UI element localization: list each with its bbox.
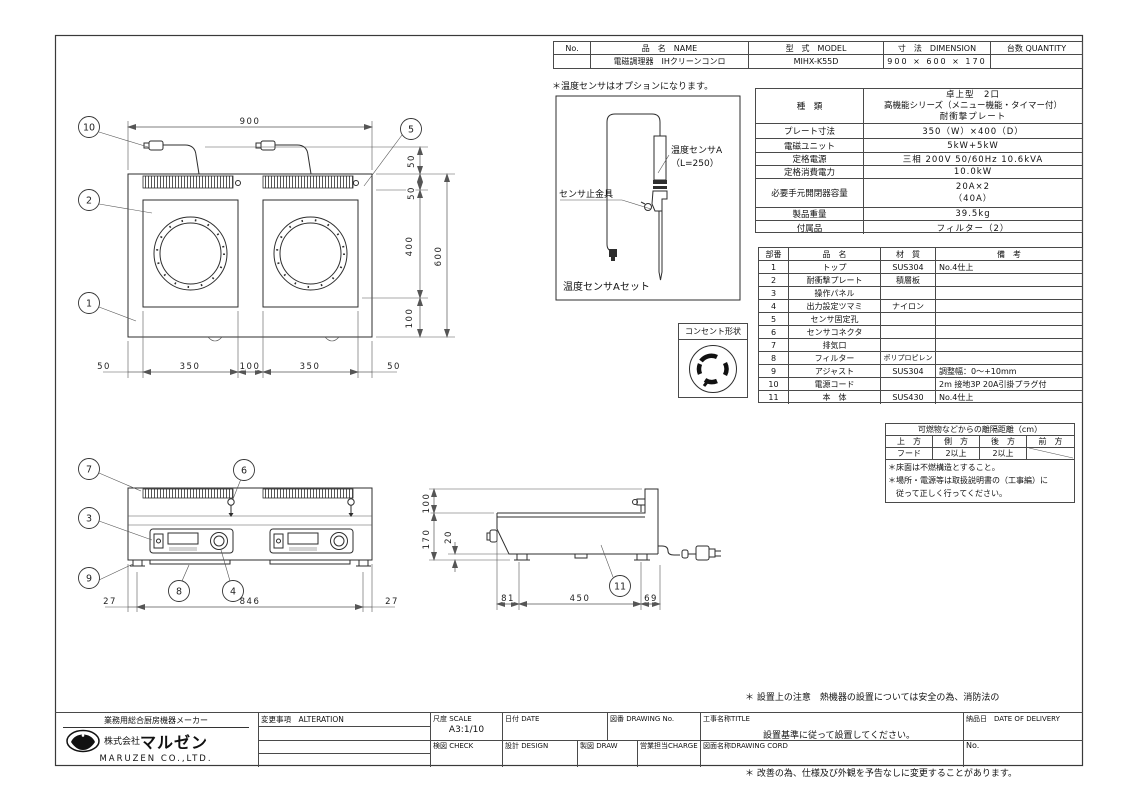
parts-table-head: 部番 品 名 材 質 備 考 — [759, 248, 1082, 261]
part-no: 9 — [759, 365, 789, 377]
balloon-1-label: 1 — [86, 299, 92, 310]
table-row: 3 操作パネル — [759, 287, 1082, 300]
col-dimension: 寸 法 DIMENSION — [884, 42, 991, 54]
spec-value: 5kW+5kW — [864, 139, 1082, 152]
sensor-detail: 温度センサA （L=250） センサ止金具 温度センサAセット — [556, 96, 740, 300]
part-note: No.4仕上 — [936, 261, 1082, 273]
burner-left-inner — [160, 223, 221, 284]
charge-cell: 営業担当CHARGE — [637, 740, 700, 767]
part-name: センサコネクタ — [789, 326, 881, 338]
plate-left — [143, 200, 238, 307]
dim-50-vent: 50 — [407, 186, 417, 200]
part-note: No.4仕上 — [936, 391, 1082, 404]
dim-600: 600 — [434, 246, 444, 267]
table-row: 製品重量 39.5kg — [756, 208, 1082, 221]
dim-27r: 27 — [385, 597, 399, 607]
table-row: 電磁ユニット 5kW+5kW — [756, 139, 1082, 153]
note-line3: ＊ 改善の為、仕様及び外観を予告なしに変更することがあります。 — [745, 768, 1017, 781]
spec-label: 種 類 — [756, 89, 864, 123]
delivery-cell: 納品日 DATE OF DELIVERY — [963, 713, 1083, 740]
spec-label: 製品重量 — [756, 208, 864, 220]
part-name: センサ固定孔 — [789, 313, 881, 325]
plan-body — [128, 174, 372, 337]
part-note — [936, 339, 1082, 351]
col-quantity: 台数 QUANTITY — [991, 42, 1082, 54]
dim-27l: 27 — [103, 597, 117, 607]
charge-label: 営業担当CHARGE — [638, 740, 700, 752]
parts-table: 部番 品 名 材 質 備 考 1 トップ SUS304 No.4仕上 2 耐衝撃… — [758, 247, 1083, 403]
plan-extension-lines — [103, 121, 455, 378]
part-material: ポリプロピレン — [881, 352, 936, 364]
date-cell: 日付 DATE — [502, 713, 607, 740]
col-note: 備 考 — [936, 248, 1082, 260]
control-panel-right — [270, 529, 353, 553]
company-cell: 業務用総合厨房機器メーカー 株式会社 マルゼン MARUZEN CO.,LTD. — [55, 713, 258, 767]
burner-right-ticks — [277, 220, 344, 287]
part-note — [936, 313, 1082, 325]
sensor-connector-right — [348, 499, 354, 517]
part-name: フィルター — [789, 352, 881, 364]
clearance-title-row: 可燃物などからの離隔距離（cm） — [886, 424, 1074, 436]
cell-name: 電磁調理器 IHクリーンコンロ — [591, 55, 749, 68]
cell-dimension: 900 × 600 × 170 — [884, 55, 991, 68]
dim-b50l: 50 — [97, 362, 111, 372]
part-material: SUS430 — [881, 391, 936, 404]
side-foot-front — [514, 554, 530, 560]
balloon-11-label: 11 — [614, 582, 626, 593]
side-foot-back — [634, 554, 650, 560]
scale-cell: 尺度 SCALE A3:1/10 — [430, 713, 502, 740]
part-no: 10 — [759, 378, 789, 390]
sensor-hole-left — [236, 181, 241, 186]
col-model: 型 式 MODEL — [749, 42, 884, 54]
spec-value: 350（W）×400（D） — [864, 124, 1082, 138]
sensor-length-label: （L=250） — [671, 158, 719, 169]
dim-81: 81 — [501, 594, 515, 604]
part-name: 操作パネル — [789, 287, 881, 299]
clearance-notes: ＊床面は不燃構造とすること。 ＊場所・電源等は取扱説明書の（工事編）に 従って正… — [886, 460, 1074, 502]
delivery-label: 納品日 DATE OF DELIVERY — [964, 713, 1083, 725]
col-name: 品 名 NAME — [591, 42, 749, 54]
clearance-note3: 従って正しく行ってください。 — [888, 487, 1072, 500]
dim-sv20: 20 — [444, 530, 454, 544]
header-table-head: No. 品 名 NAME 型 式 MODEL 寸 法 DIMENSION 台数 … — [554, 42, 1082, 55]
spec-value: 三相 200V 50/60Hz 10.6kVA — [864, 153, 1082, 165]
dim-b350r: 350 — [300, 362, 321, 372]
dim-400: 400 — [405, 236, 415, 257]
dim-450: 450 — [570, 594, 591, 604]
vent-grille-right — [263, 176, 353, 188]
sensor-band2 — [653, 186, 667, 189]
cell-model: MIHX-K55D — [749, 55, 884, 68]
company-tagline: 業務用総合厨房機器メーカー — [63, 715, 249, 728]
part-material: 積層板 — [881, 274, 936, 286]
part-name: 耐衝撃プレート — [789, 274, 881, 286]
col-part-no: 部番 — [759, 248, 789, 260]
col-material: 材 質 — [881, 248, 936, 260]
part-no: 2 — [759, 274, 789, 286]
part-no: 4 — [759, 300, 789, 312]
dim-100: 100 — [405, 308, 415, 329]
part-name: トップ — [789, 261, 881, 273]
part-no: 11 — [759, 391, 789, 404]
table-row: プレート寸法 350（W）×400（D） — [756, 124, 1082, 139]
part-no: 8 — [759, 352, 789, 364]
spec-label: 定格消費電力 — [756, 166, 864, 178]
dim-sv170: 170 — [422, 529, 432, 550]
spec-label: 定格電源 — [756, 153, 864, 165]
sensor-clamp — [652, 191, 667, 211]
dim-b50r: 50 — [387, 362, 401, 372]
balloon-2-label: 2 — [86, 196, 92, 207]
company-name: マルゼン — [140, 729, 208, 753]
drawing-no-label: 図番 DRAWING No. — [608, 713, 700, 725]
dim-sv100: 100 — [422, 493, 432, 514]
drawing-sheet: 900 50 50 400 100 600 50 350 100 350 50 … — [0, 0, 1135, 802]
balloon-9-label: 9 — [86, 574, 92, 585]
draw-label: 製図 DRAW — [578, 740, 637, 752]
part-name: 本 体 — [789, 391, 881, 404]
spec-label: 付属品 — [756, 221, 864, 234]
alteration-label: 変更事項 ALTERATION — [259, 713, 430, 726]
part-name: 出力設定ツマミ — [789, 300, 881, 312]
output-knob-left — [211, 533, 228, 550]
clearance-h-back: 後 方 — [980, 436, 1027, 447]
burner-right-outer — [274, 217, 347, 290]
table-row: 種 類 卓上型 2口 高機能シリーズ（メニュー機能・タイマー付） 耐衝撃プレート — [756, 89, 1082, 124]
part-name: 排気口 — [789, 339, 881, 351]
header-table-row: 電磁調理器 IHクリーンコンロ MIHX-K55D 900 × 600 × 17… — [554, 55, 1082, 68]
part-note: 調整幅：0～+10mm — [936, 365, 1082, 377]
front-vent-left — [143, 489, 233, 498]
table-row: 7 排気口 — [759, 339, 1082, 352]
clearance-v-front — [1027, 448, 1074, 459]
balloon-7-label: 7 — [86, 465, 92, 476]
delivery-no-cell: No. — [963, 740, 1083, 767]
part-material — [881, 287, 936, 299]
cell-quantity — [991, 55, 1082, 68]
side-profile — [497, 489, 658, 554]
part-no: 7 — [759, 339, 789, 351]
part-material — [881, 378, 936, 390]
alteration-line1 — [258, 726, 430, 727]
balloon-6-label: 6 — [241, 466, 247, 477]
table-row: 付属品 フィルター（2） — [756, 221, 1082, 234]
design-label: 設計 DESIGN — [503, 740, 577, 752]
spec-label: 必要手元開閉器容量 — [756, 179, 864, 207]
plan-feet — [208, 337, 339, 341]
outlet-shape-box — [678, 339, 748, 398]
clearance-h-side: 側 方 — [933, 436, 980, 447]
table-row: 4 出力設定ツマミ ナイロン — [759, 300, 1082, 313]
side-view: 100 170 20 81 450 69 11 — [422, 489, 721, 610]
sensor-option-note: ＊温度センサはオプションになります。 — [552, 79, 752, 92]
maruzen-logo-icon — [65, 729, 101, 753]
clearance-header-row: 上 方 側 方 後 方 前 方 — [886, 436, 1074, 448]
burner-right-inner — [280, 223, 341, 284]
company-prefix: 株式会社 — [104, 734, 140, 747]
part-material: ナイロン — [881, 300, 936, 312]
part-material — [881, 339, 936, 351]
company-logo-row: 株式会社 マルゼン — [65, 728, 255, 753]
clamp-label: センサ止金具 — [559, 188, 613, 200]
table-row: 9 アジャスト SUS304 調整幅：0～+10mm — [759, 365, 1082, 378]
spec-type-line1: 卓上型 2口 — [946, 90, 1000, 101]
check-cell: 検図 CHECK — [430, 740, 502, 767]
burner-left-outer — [154, 217, 227, 290]
sensor-body — [654, 136, 666, 180]
col-part-name: 品 名 — [789, 248, 881, 260]
part-note — [936, 287, 1082, 299]
part-material — [881, 326, 936, 338]
spec-label: プレート寸法 — [756, 124, 864, 138]
clearance-h-front: 前 方 — [1027, 436, 1074, 447]
company-en: MARUZEN CO.,LTD. — [63, 754, 249, 764]
outlet-title-box: コンセント形状 — [678, 323, 748, 340]
part-no: 5 — [759, 313, 789, 325]
adjust-foot-right — [356, 560, 371, 566]
project-title-cell: 工事名称TITLE — [700, 713, 963, 740]
alteration-line2 — [258, 740, 430, 741]
col-no: No. — [554, 42, 591, 54]
dim-846: 846 — [240, 597, 261, 607]
front-view: 27 846 27 7 6 3 9 8 4 — [79, 459, 399, 613]
part-no: 6 — [759, 326, 789, 338]
clearance-value-row: フード 2以上 2以上 — [886, 448, 1074, 460]
check-label: 検図 CHECK — [431, 740, 502, 752]
alteration-line3 — [258, 753, 430, 754]
dim-69: 69 — [644, 594, 658, 604]
sensor-band1 — [653, 180, 667, 184]
clearance-note2: ＊場所・電源等は取扱説明書の（工事編）に — [888, 474, 1072, 487]
sensor-label: 温度センサA — [671, 144, 723, 156]
cell-no — [554, 55, 591, 68]
vent-grille-left — [143, 176, 233, 188]
scale-label: 尺度 SCALE — [431, 713, 502, 725]
power-plug-left — [144, 141, 199, 174]
front-vent-right — [263, 489, 353, 498]
side-power-cord — [658, 546, 721, 560]
sensor-hole-right — [354, 181, 359, 186]
spec-value: 39.5kg — [864, 208, 1082, 220]
output-knob-right — [331, 533, 348, 550]
part-note — [936, 326, 1082, 338]
drawing-name-label: 図面名称DRAWING CORD — [701, 740, 963, 752]
table-row: 定格電源 三相 200V 50/60Hz 10.6kVA — [756, 153, 1082, 166]
front-panel-lines — [128, 516, 372, 525]
clearance-v-top: フード — [886, 448, 933, 459]
part-material: SUS304 — [881, 365, 936, 377]
side-sensor-connector — [633, 499, 646, 512]
delivery-no-label: No. — [964, 740, 1083, 751]
dim-b100: 100 — [240, 362, 261, 372]
burner-left-ticks — [157, 220, 224, 287]
spec-type-line3: 耐衝撃プレート — [940, 112, 1007, 123]
sensor-cable — [607, 114, 660, 251]
side-knob — [487, 530, 497, 542]
table-row: 8 フィルター ポリプロピレン — [759, 352, 1082, 365]
dim-b350l: 350 — [180, 362, 201, 372]
dim-50-cord: 50 — [407, 154, 417, 168]
date-label: 日付 DATE — [503, 713, 607, 725]
draw-cell: 製図 DRAW — [577, 740, 637, 767]
sensor-cable-connector — [609, 249, 617, 257]
part-name: 電源コード — [789, 378, 881, 390]
clearance-title: 可燃物などからの離隔距離（cm） — [886, 424, 1074, 435]
part-note: 2m 接地3P 20A引掛プラグ付 — [936, 378, 1082, 390]
sensor-cable-connector-tip — [611, 257, 615, 261]
table-row: 必要手元開閉器容量 20A×2 （40A） — [756, 179, 1082, 208]
part-name: アジャスト — [789, 365, 881, 377]
part-no: 3 — [759, 287, 789, 299]
spec-value: 10.0kW — [864, 166, 1082, 178]
clearance-h-top: 上 方 — [886, 436, 933, 447]
part-note — [936, 274, 1082, 286]
drawing-no-cell: 図番 DRAWING No. — [607, 713, 700, 740]
clearance-table: 可燃物などからの離隔距離（cm） 上 方 側 方 後 方 前 方 フード 2以上… — [885, 423, 1075, 503]
scale-value: A3:1/10 — [431, 725, 502, 735]
part-material: SUS304 — [881, 261, 936, 273]
part-material — [881, 313, 936, 325]
balloon-4-label: 4 — [230, 587, 236, 598]
header-table: No. 品 名 NAME 型 式 MODEL 寸 法 DIMENSION 台数 … — [553, 41, 1083, 69]
drawing-name-cell: 図面名称DRAWING CORD — [700, 740, 963, 767]
table-row: 5 センサ固定孔 — [759, 313, 1082, 326]
adjust-foot-left — [130, 560, 145, 566]
plan-view: 900 50 50 400 100 600 50 350 100 350 50 … — [79, 117, 456, 379]
balloon-10-label: 10 — [83, 123, 95, 134]
part-note — [936, 352, 1082, 364]
balloon-3-label: 3 — [86, 514, 92, 525]
side-center-tab — [575, 554, 587, 558]
clearance-note1: ＊床面は不燃構造とすること。 — [888, 461, 1072, 474]
spec-type-line2: 高機能シリーズ（メニュー機能・タイマー付） — [884, 101, 1062, 112]
clamp-screw-wing — [641, 202, 645, 204]
balloon-8-label: 8 — [176, 587, 182, 598]
part-no: 1 — [759, 261, 789, 273]
table-row: 10 電源コード 2m 接地3P 20A引掛プラグ付 — [759, 378, 1082, 391]
project-title-label: 工事名称TITLE — [701, 713, 963, 725]
power-plug-right — [256, 141, 311, 174]
table-row: 2 耐衝撃プレート 積層板 — [759, 274, 1082, 287]
control-panel-left — [150, 529, 233, 553]
balloon-5-label: 5 — [408, 125, 414, 136]
table-row: 11 本 体 SUS430 No.4仕上 — [759, 391, 1082, 404]
table-row: 定格消費電力 10.0kW — [756, 166, 1082, 179]
table-row: 6 センサコネクタ — [759, 326, 1082, 339]
note-line1: ＊ 設置上の注意 熱機器の設置については安全の為、消防法の — [745, 692, 1017, 705]
design-cell: 設計 DESIGN — [502, 740, 577, 767]
sensor-caption: 温度センサAセット — [563, 280, 650, 293]
spec-table: 種 類 卓上型 2口 高機能シリーズ（メニュー機能・タイマー付） 耐衝撃プレート… — [755, 88, 1083, 233]
spec-breaker-line2: （40A） — [954, 193, 993, 205]
dim-900: 900 — [240, 117, 261, 127]
clearance-v-side: 2以上 — [933, 448, 980, 459]
filter-right — [270, 560, 350, 564]
sensor-needle — [659, 211, 662, 280]
outlet-title: コンセント形状 — [685, 326, 741, 337]
spec-value: フィルター（2） — [864, 221, 1082, 234]
table-row: 1 トップ SUS304 No.4仕上 — [759, 261, 1082, 274]
sensor-connector-left — [228, 499, 234, 517]
title-block: 業務用総合厨房機器メーカー 株式会社 マルゼン MARUZEN CO.,LTD.… — [55, 712, 1083, 766]
filter-left — [150, 560, 230, 564]
part-note — [936, 300, 1082, 312]
spec-label: 電磁ユニット — [756, 139, 864, 152]
clearance-v-back: 2以上 — [980, 448, 1027, 459]
spec-breaker-line1: 20A×2 — [956, 181, 990, 193]
